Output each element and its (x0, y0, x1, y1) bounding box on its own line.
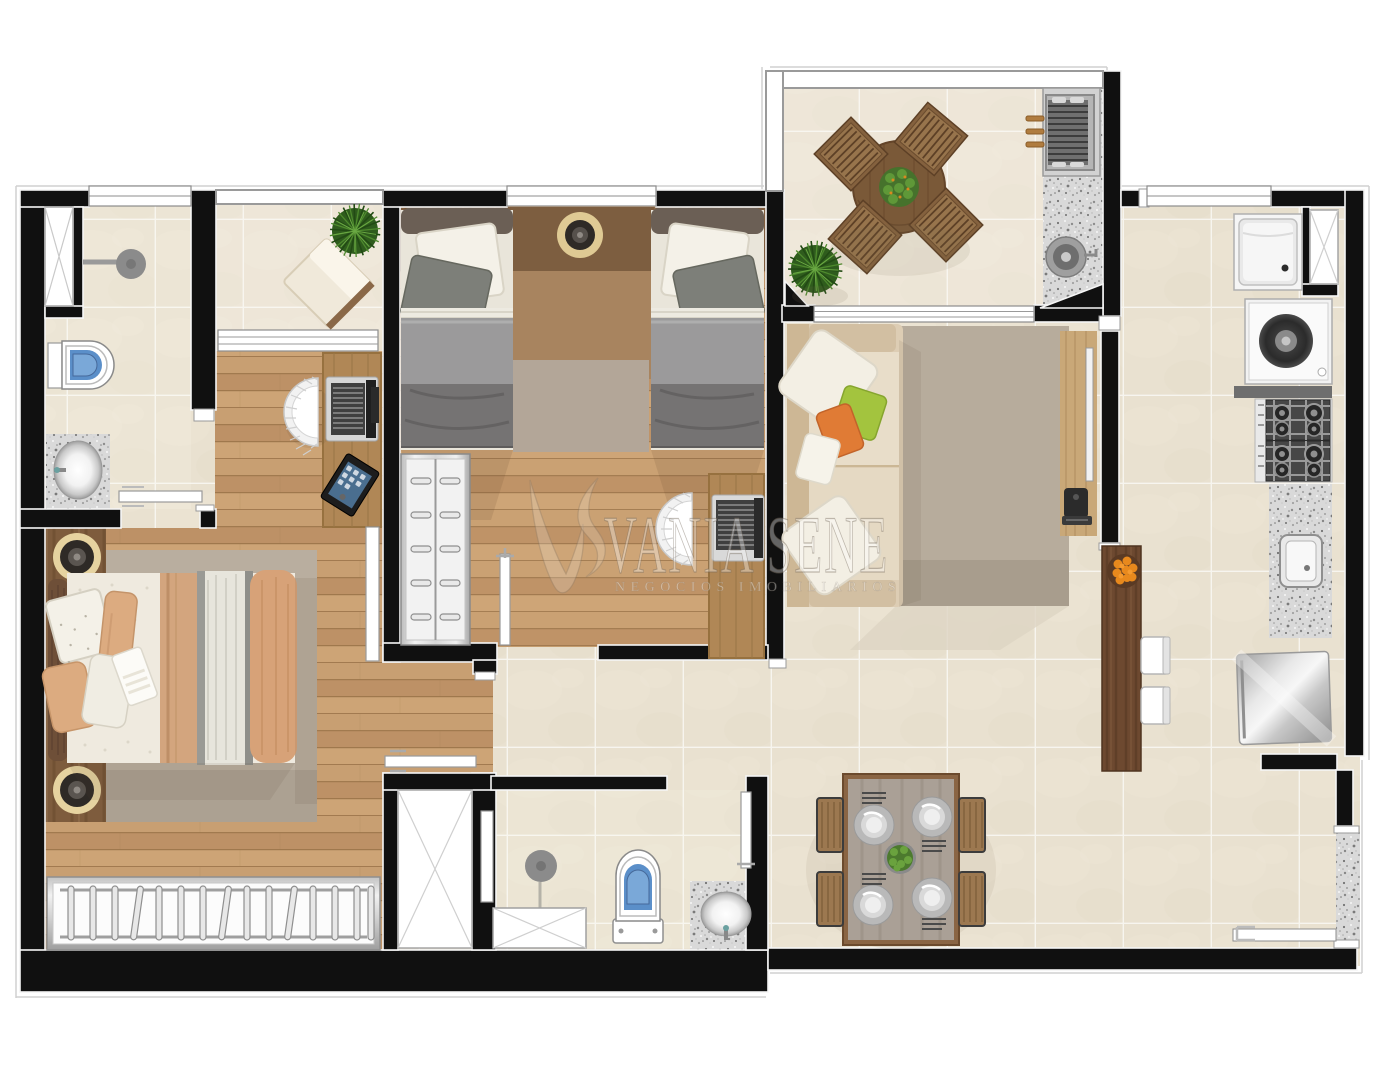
svg-text:VANIA SENE: VANIA SENE (604, 500, 890, 590)
svg-text:NEGOCIOS IMOBILIARIOS: NEGOCIOS IMOBILIARIOS (615, 580, 901, 595)
